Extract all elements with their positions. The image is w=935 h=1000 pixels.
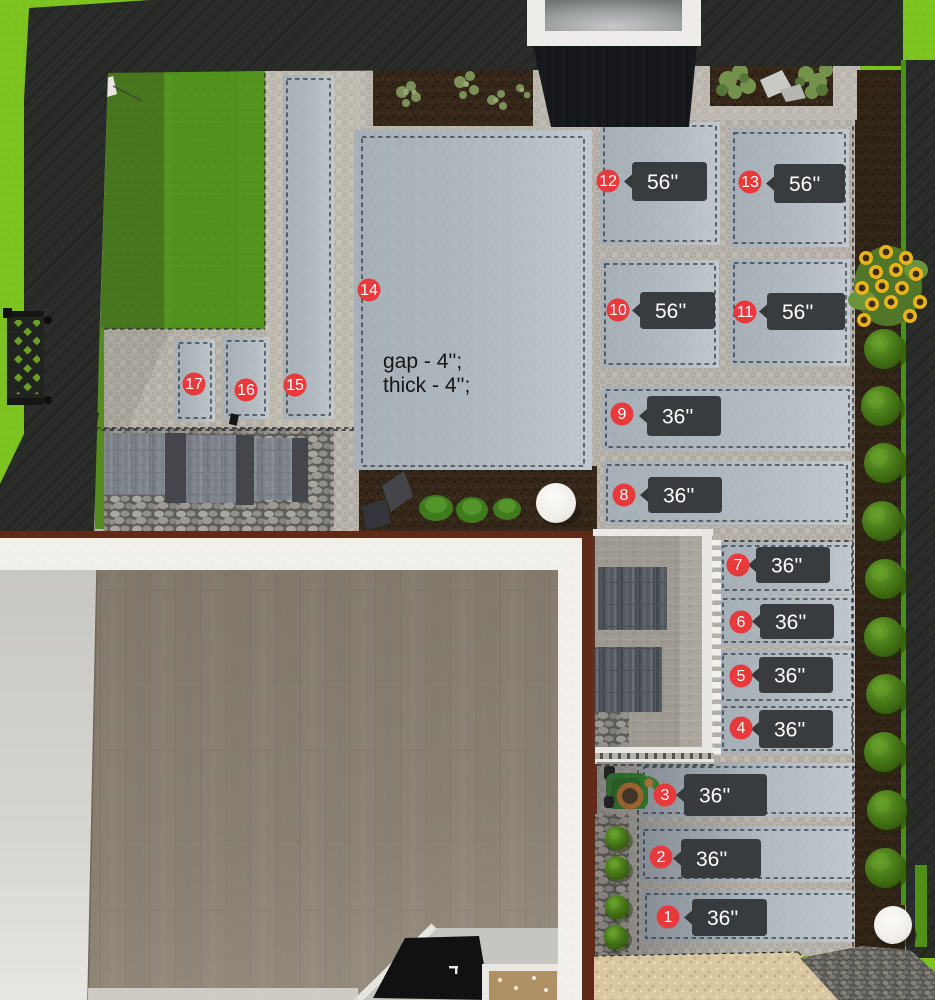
- svg-text:13: 13: [741, 174, 759, 191]
- svg-text:56'': 56'': [655, 300, 686, 323]
- svg-text:14: 14: [360, 282, 378, 299]
- svg-text:11: 11: [737, 304, 754, 321]
- svg-text:36'': 36'': [699, 785, 730, 808]
- svg-text:9: 9: [618, 406, 627, 423]
- svg-text:2: 2: [657, 849, 666, 866]
- svg-text:36'': 36'': [774, 719, 805, 742]
- svg-text:17: 17: [185, 376, 203, 393]
- svg-text:36'': 36'': [707, 907, 738, 930]
- svg-text:5: 5: [737, 668, 746, 685]
- svg-text:36'': 36'': [662, 406, 693, 429]
- svg-text:1: 1: [664, 909, 673, 926]
- svg-text:36'': 36'': [696, 848, 727, 871]
- svg-text:15: 15: [286, 377, 304, 394]
- svg-text:7: 7: [734, 557, 743, 574]
- svg-text:3: 3: [661, 787, 670, 804]
- svg-text:36'': 36'': [663, 485, 694, 508]
- svg-text:thick - 4'';: thick - 4'';: [383, 374, 470, 397]
- svg-text:10: 10: [609, 302, 627, 319]
- svg-text:6: 6: [737, 614, 746, 631]
- svg-text:4: 4: [737, 720, 746, 737]
- svg-text:8: 8: [620, 487, 629, 504]
- svg-text:56'': 56'': [647, 171, 678, 194]
- svg-text:gap - 4'';: gap - 4'';: [383, 350, 462, 373]
- svg-text:56'': 56'': [782, 301, 813, 324]
- svg-text:16: 16: [237, 382, 255, 399]
- svg-text:36'': 36'': [771, 555, 802, 578]
- svg-text:56'': 56'': [789, 173, 820, 196]
- svg-text:12: 12: [599, 173, 617, 190]
- svg-text:36'': 36'': [774, 665, 805, 688]
- svg-text:36'': 36'': [775, 611, 806, 634]
